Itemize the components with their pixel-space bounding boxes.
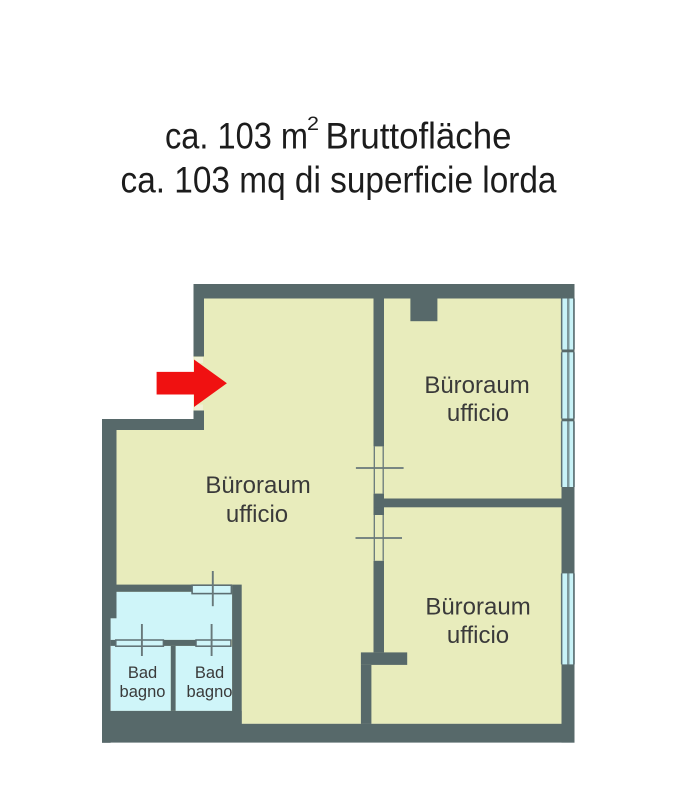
svg-text:ufficio: ufficio: [447, 622, 509, 649]
svg-text:2: 2: [307, 113, 319, 135]
svg-text:ufficio: ufficio: [447, 400, 509, 427]
svg-text:Bruttofläche: Bruttofläche: [326, 115, 512, 157]
svg-text:ufficio: ufficio: [226, 501, 288, 528]
svg-text:Büroraum: Büroraum: [425, 594, 530, 621]
svg-text:Büroraum: Büroraum: [205, 472, 310, 499]
svg-text:bagno: bagno: [187, 683, 233, 701]
svg-text:ca. 103 mq di superficie lorda: ca. 103 mq di superficie lorda: [121, 159, 557, 201]
svg-text:Bad: Bad: [128, 664, 157, 682]
svg-text:Bad: Bad: [195, 664, 224, 682]
svg-text:ca. 103 m: ca. 103 m: [165, 115, 308, 157]
svg-text:bagno: bagno: [120, 683, 166, 701]
svg-text:Büroraum: Büroraum: [424, 372, 529, 399]
